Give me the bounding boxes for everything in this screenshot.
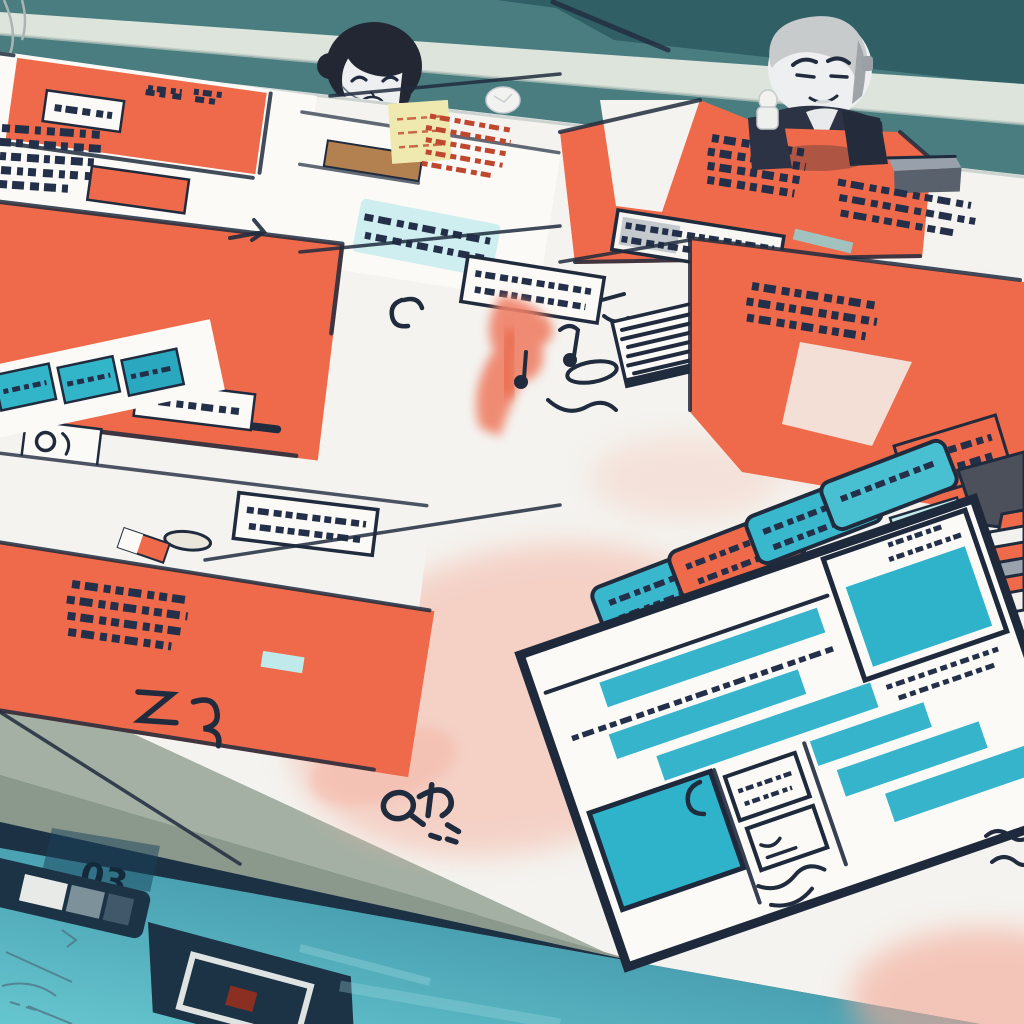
illustration-canvas: 03 — [0, 0, 1024, 1024]
eye-left — [797, 75, 814, 77]
paper-crumple-1 — [486, 87, 520, 113]
red-paint-stroke — [506, 330, 512, 396]
eye-right — [831, 76, 847, 77]
scene-svg: 03 — [0, 0, 1024, 1024]
paper-crumple-2 — [757, 90, 778, 129]
hair-bun — [317, 53, 343, 79]
lip-highlight — [815, 99, 833, 106]
earpiece — [862, 56, 873, 71]
